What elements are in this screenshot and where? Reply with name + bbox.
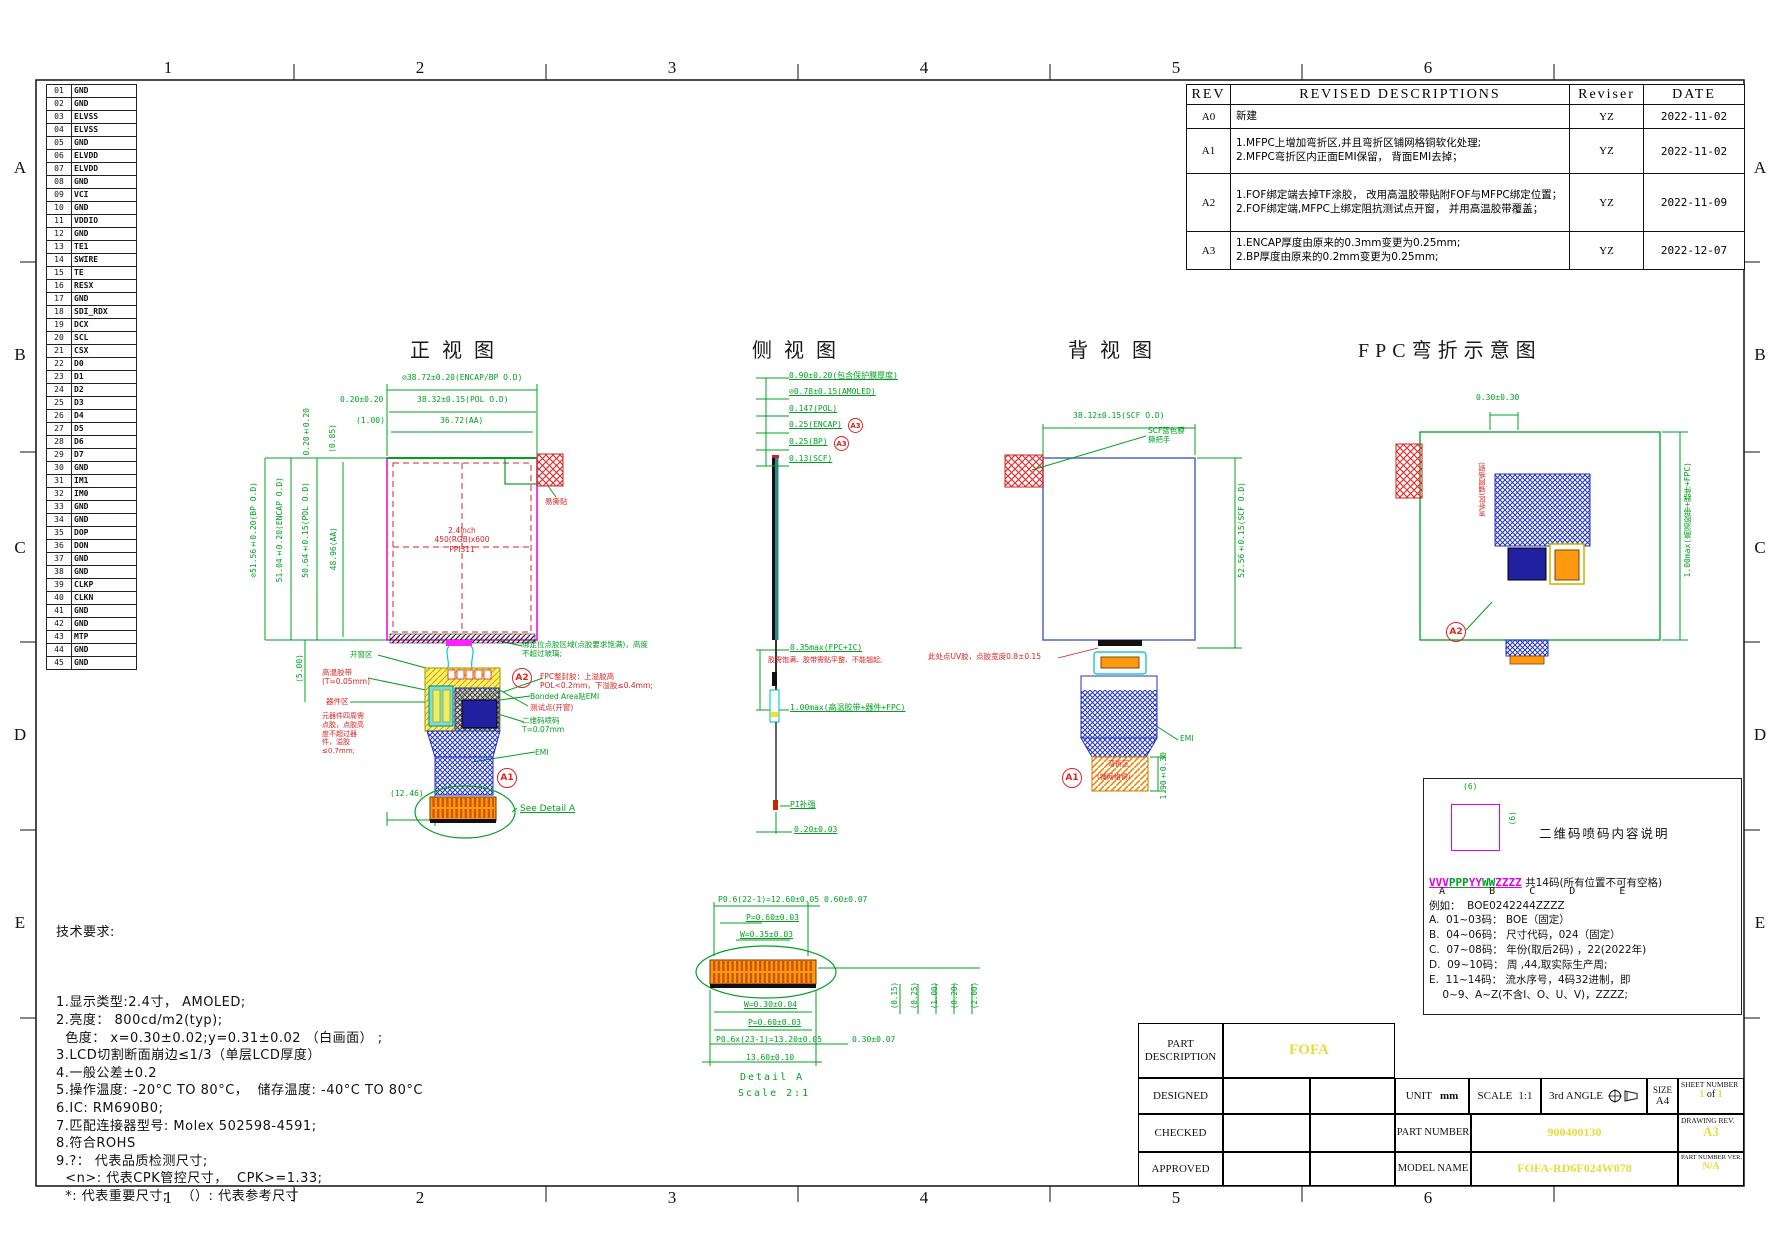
pin-row: 03 ELVSS — [47, 111, 137, 124]
dim-bp-height: ⊘51.56±0.20(BP O.D) — [250, 482, 259, 578]
pin-row: 14 SWIRE — [47, 254, 137, 267]
approved-date-cell — [1310, 1152, 1395, 1186]
qr-code-square — [1451, 804, 1500, 851]
pin-name: SDI_RDX — [72, 306, 137, 319]
revision-description: 新建 — [1231, 105, 1570, 129]
part-description-value: FOFA — [1223, 1023, 1395, 1078]
dim-pol-offset: 0.20±0.20 — [340, 396, 383, 405]
pin-number: 10 — [47, 202, 72, 215]
zone-number: 3 — [652, 58, 692, 78]
dim-scf-height: 52.56±0.15(SCF O.D) — [1238, 482, 1247, 578]
pin-number: 14 — [47, 254, 72, 267]
tech-line: 5.操作温度: -20°C TO 80°C， 储存温度: -40°C TO 80… — [56, 1082, 423, 1100]
tech-line: 2.亮度： 800cd/m2(typ); — [56, 1012, 423, 1030]
detail-a-scale: Scale 2:1 — [738, 1088, 810, 1099]
revision-id: A0 — [1187, 105, 1231, 129]
pin-row: 06 ELVDD — [47, 150, 137, 163]
ref-dim: (0.25) — [910, 982, 919, 1009]
zone-letter: B — [1748, 345, 1772, 365]
pin-row: 29 D7 — [47, 449, 137, 462]
pin-number: 20 — [47, 332, 72, 345]
pin-row: 11 VDDIO — [47, 215, 137, 228]
revision-id: A1 — [1187, 129, 1231, 174]
pin-row: 17 GND — [47, 293, 137, 306]
side-dim: 0.147(POL) — [789, 404, 898, 421]
checked-name-cell — [1223, 1114, 1310, 1152]
revision-date: 2022-11-09 — [1644, 174, 1745, 232]
detail-a-ref-dims: (0.15)(0.25)(1.00)(0.20)(2.00) — [890, 982, 979, 1009]
pin-row: 12 GND — [47, 228, 137, 241]
pin-name: D6 — [72, 436, 137, 449]
pin-number: 37 — [47, 553, 72, 566]
panel-ppi: PPI311 — [420, 545, 504, 554]
size-value: A4 — [1656, 1095, 1669, 1108]
qr-item: A. 01~03码： BOE（固定） — [1429, 913, 1646, 928]
pin-name: VCI — [72, 189, 137, 202]
pin-name: ELVSS — [72, 124, 137, 137]
pin-number: 36 — [47, 540, 72, 553]
pin-name: DCX — [72, 319, 137, 332]
pin-row: 43 MTP — [47, 631, 137, 644]
pin-name: D3 — [72, 397, 137, 410]
revision-reviser: YZ — [1570, 105, 1644, 129]
pin-number: 07 — [47, 163, 72, 176]
designed-date-cell — [1310, 1078, 1395, 1114]
pin-name: GND — [72, 566, 137, 579]
designed-name-cell — [1223, 1078, 1310, 1114]
scale-label: SCALE — [1478, 1090, 1513, 1103]
revision-reviser: YZ — [1570, 232, 1644, 270]
dim-aa-width: 36.72(AA) — [440, 417, 483, 426]
qr-item: E. 11~14码： 流水序号，4码32进制，即 — [1429, 973, 1646, 988]
dim-pol-height: 50.64±0.15(POL O.D) — [302, 482, 311, 578]
tech-line: 8.符合ROHS — [56, 1135, 423, 1153]
revision-row: A1 1.MFPC上增加弯折区,并且弯折区铺网格铜软化处理; 2.MFPC弯折区… — [1187, 129, 1745, 174]
front-view-title: 正视图 — [410, 334, 506, 363]
tech-lines: 1.显示类型:2.4寸， AMOLED;2.亮度： 800cd/m2(typ);… — [56, 942, 423, 1206]
qr-items: A. 01~03码： BOE（固定）B. 04~06码： 尺寸代码，024（固定… — [1429, 913, 1646, 1003]
zone-letter: D — [8, 725, 32, 745]
date-header: DATE — [1644, 85, 1745, 105]
revision-header-row: REV REVISED DESCRIPTIONS Reviser DATE — [1187, 85, 1745, 105]
pin-name: GND — [72, 228, 137, 241]
fpc-seal-note: FPC整封胶：上溢胶高POL<0.2mm，下溢胶≤0.4mm; — [540, 672, 660, 691]
zone-number: 1 — [148, 58, 188, 78]
pin-row: 25 D3 — [47, 397, 137, 410]
pin-number: 35 — [47, 527, 72, 540]
qr-item: D. 09~10码： 周 ,44,取实际生产周; — [1429, 958, 1646, 973]
qr-item: 0~9、A~Z(不含I、O、U、V)，ZZZZ; — [1429, 988, 1646, 1003]
pin-name: MTP — [72, 631, 137, 644]
revision-date: 2022-12-07 — [1644, 232, 1745, 270]
pin-row: 37 GND — [47, 553, 137, 566]
bend-area-label: 弯折区(铺网格铜) — [1478, 462, 1487, 516]
rev-a1-marker-front: A1 — [497, 768, 517, 788]
pin-row: 15 TE — [47, 267, 137, 280]
pin-row: 28 D6 — [47, 436, 137, 449]
technical-requirements: 技术要求: 1.显示类型:2.4寸， AMOLED;2.亮度： 800cd/m2… — [56, 924, 423, 1206]
bend-zone-label: 弯折区 — [1108, 760, 1129, 769]
qr-letters: A B C D E — [1429, 886, 1629, 897]
pin-name: GND — [72, 462, 137, 475]
scf-film-line1: SCF蓝色膜 — [1148, 426, 1185, 435]
dim-stack-height: 1.00max(高温胶带+器件+FPC) — [790, 704, 905, 713]
pin-name: CLKN — [72, 592, 137, 605]
dim-bend-stack: 1.00max(高温胶带+器件+FPC) — [1684, 462, 1693, 577]
pin-name: TE1 — [72, 241, 137, 254]
pin-number: 29 — [47, 449, 72, 462]
pin-row: 18 SDI_RDX — [47, 306, 137, 319]
window-area-label: 开窗区 — [350, 650, 373, 659]
pin-number: 40 — [47, 592, 72, 605]
pin-number: 02 — [47, 98, 72, 111]
uv-glue-note: 此处点UV胶，点胶宽度0.8±0.15 — [928, 652, 1041, 661]
tech-line: 9.?： 代表品质检测尺寸; — [56, 1153, 423, 1171]
sheet-number-value: 1 of 1 — [1699, 1089, 1722, 1101]
revision-description: 1.FOF绑定端去掉TF涂胶， 改用高温胶带贴附FOF与MFPC绑定位置； 2.… — [1231, 174, 1570, 232]
pin-row: 02 GND — [47, 98, 137, 111]
pin-number: 32 — [47, 488, 72, 501]
pin-row: 30 GND — [47, 462, 137, 475]
pin-number: 19 — [47, 319, 72, 332]
pin-name: DOP — [72, 527, 137, 540]
revision-row: A2 1.FOF绑定端去掉TF涂胶， 改用高温胶带贴附FOF与MFPC绑定位置；… — [1187, 174, 1745, 232]
dim-030: 0.30±0.07 — [852, 1036, 895, 1045]
pin-row: 20 SCL — [47, 332, 137, 345]
zone-letter: C — [1748, 538, 1772, 558]
rev-a3-marker-bp: A3 — [834, 436, 849, 451]
pin-row: 19 DCX — [47, 319, 137, 332]
pin-number: 17 — [47, 293, 72, 306]
pin-name: IM1 — [72, 475, 137, 488]
qr-print-label: 二维码喷码 T=0.07mm — [522, 716, 582, 735]
pin-number: 18 — [47, 306, 72, 319]
dim-width-top: W=0.35±0.03 — [740, 931, 793, 940]
zone-number: 2 — [400, 58, 440, 78]
pin-number: 42 — [47, 618, 72, 631]
pin-row: 41 GND — [47, 605, 137, 618]
zone-number: 5 — [1156, 58, 1196, 78]
approved-name-cell — [1223, 1152, 1310, 1186]
zone-number: 6 — [1408, 1188, 1448, 1208]
pin-number: 11 — [47, 215, 72, 228]
pin-row: 45 GND — [47, 657, 137, 670]
dim-scf-width: 38.12±0.15(SCF O.D) — [1073, 412, 1165, 421]
part-number-label: PART NUMBER — [1395, 1114, 1471, 1152]
pin-name: ELVDD — [72, 150, 137, 163]
pin-number: 21 — [47, 345, 72, 358]
dim-encap-bp-od: ⊘38.72±0.20(ENCAP/BP O.D) — [402, 374, 522, 383]
dim-085: (0.85) — [329, 424, 338, 453]
pin-row: 32 IM0 — [47, 488, 137, 501]
detail-a-caption: Detail A — [740, 1072, 804, 1083]
zone-number: 4 — [904, 58, 944, 78]
zone-number: 4 — [904, 1188, 944, 1208]
pin-number: 30 — [47, 462, 72, 475]
bonded-area-emi-label: Bonded Area贴EMI — [530, 692, 599, 701]
pin-row: 38 GND — [47, 566, 137, 579]
tech-line: 4.一般公差±0.2 — [56, 1065, 423, 1083]
pin-name: D5 — [72, 423, 137, 436]
tech-line: <n>: 代表CPK管控尺寸， CPK>=1.33; — [56, 1170, 423, 1188]
pin-name: GND — [72, 514, 137, 527]
pin-name: D4 — [72, 410, 137, 423]
pin-name: ELVDD — [72, 163, 137, 176]
unit-cell: UNIT mm — [1395, 1078, 1469, 1114]
scale-cell: SCALE 1:1 — [1469, 1078, 1541, 1114]
pin-number: 33 — [47, 501, 72, 514]
rev-a2-marker-front: A2 — [512, 668, 532, 688]
drawing-rev-value: A3 — [1703, 1125, 1719, 1140]
dim-aa-offset: (1.00) — [356, 417, 385, 426]
desc-header: REVISED DESCRIPTIONS — [1231, 85, 1570, 105]
pin-name: GND — [72, 176, 137, 189]
revision-row: A0 新建 YZ 2022-11-02 — [1187, 105, 1745, 129]
zone-letter: B — [8, 345, 32, 365]
pin-number: 08 — [47, 176, 72, 189]
pin-number: 27 — [47, 423, 72, 436]
pin-number: 23 — [47, 371, 72, 384]
model-name-value: FOFA-RD6F024W078 — [1471, 1152, 1678, 1186]
pin-row: 22 D0 — [47, 358, 137, 371]
dim-width-bottom: W=0.30±0.04 — [744, 1001, 797, 1010]
bonding-glue-note: 绑定位点胶区域(点胶要求饱满)，高度不超过玻璃; — [522, 640, 650, 659]
pin-name: DON — [72, 540, 137, 553]
pin-row: 44 GND — [47, 644, 137, 657]
pin-name: VDDIO — [72, 215, 137, 228]
pin-name: GND — [72, 137, 137, 150]
zone-letter: C — [8, 538, 32, 558]
pin-name: GND — [72, 553, 137, 566]
emi-label-back: EMI — [1180, 734, 1193, 743]
pin-name: SWIRE — [72, 254, 137, 267]
side-dim: 0.25(ENCAP) — [789, 420, 898, 437]
size-cell: SIZE A4 — [1647, 1078, 1678, 1114]
projection-cell: 3rd ANGLE — [1541, 1078, 1647, 1114]
side-dim: ⊘0.78±0.15(AMOLED) — [789, 387, 898, 404]
panel-spec-label: 2.4inch 450(RGB)x600 PPI311 — [420, 526, 504, 554]
pin-row: 10 GND — [47, 202, 137, 215]
scf-film-line2: 撕把手 — [1148, 435, 1185, 444]
zone-letter: E — [1748, 913, 1772, 933]
pin-table: 01 GND 02 GND 03 ELVSS 04 ELVSS — [46, 84, 137, 670]
pin-name: SCL — [72, 332, 137, 345]
pin-name: GND — [72, 202, 137, 215]
pin-name: D2 — [72, 384, 137, 397]
pin-number: 38 — [47, 566, 72, 579]
tape-label: 高温胶带 (T≈0.05mm) — [322, 668, 374, 687]
pin-row: 26 D4 — [47, 410, 137, 423]
ref-dim: (0.20) — [950, 982, 959, 1009]
pin-number: 15 — [47, 267, 72, 280]
pin-row: 07 ELVDD — [47, 163, 137, 176]
side-dim: 0.13(SCF) — [789, 454, 898, 471]
dim-1246: (12.46) — [390, 790, 424, 799]
pin-number: 28 — [47, 436, 72, 449]
ref-dim: (2.00) — [970, 982, 979, 1009]
rev-a1-marker-back: A1 — [1062, 768, 1082, 788]
zone-number: 5 — [1156, 1188, 1196, 1208]
sheet-of: of — [1707, 1089, 1715, 1100]
pin-row: 40 CLKN — [47, 592, 137, 605]
pin-name: GND — [72, 85, 137, 98]
pin-number: 43 — [47, 631, 72, 644]
tech-line: 3.LCD切割断面崩边≤1/3（单层LCD厚度） — [56, 1047, 423, 1065]
pin-number: 22 — [47, 358, 72, 371]
pin-row: 39 CLKP — [47, 579, 137, 592]
pin-number: 16 — [47, 280, 72, 293]
pin-number: 34 — [47, 514, 72, 527]
size-label: SIZE — [1653, 1085, 1672, 1095]
ref-dim: (1.00) — [930, 982, 939, 1009]
pin-number: 03 — [47, 111, 72, 124]
revision-reviser: YZ — [1570, 174, 1644, 232]
bend-zone-sublabel: (铺网格铜) — [1097, 773, 1130, 782]
qr-dim-width: (6) — [1463, 783, 1477, 792]
part-description-label: PART DESCRIPTION — [1138, 1023, 1223, 1078]
scf-film-label: SCF蓝色膜 撕把手 — [1148, 426, 1185, 445]
dim-bend-offset: 0.30±0.30 — [1476, 394, 1519, 403]
side-view-dim-stack: 0.90±0.20(包含保护膜厚度)⊘0.78±0.15(AMOLED)0.14… — [789, 370, 898, 471]
engineering-drawing-page: 123456 123456 ABCDE ABCDE 01 GND 02 GND — [0, 0, 1778, 1244]
scale-value: 1:1 — [1518, 1090, 1532, 1103]
revision-reviser: YZ — [1570, 129, 1644, 174]
pin-name: D7 — [72, 449, 137, 462]
zone-letter: E — [8, 913, 32, 933]
pin-row: 13 TE1 — [47, 241, 137, 254]
back-view-title: 背视图 — [1068, 334, 1164, 363]
pin-name: GND — [72, 644, 137, 657]
qr-item: B. 04~06码： 尺寸代码，024（固定） — [1429, 928, 1646, 943]
pin-number: 01 — [47, 85, 72, 98]
pin-name: CLKP — [72, 579, 137, 592]
projection-label: 3rd ANGLE — [1549, 1090, 1603, 1103]
side-dim: 0.90±0.20(包含保护膜厚度) — [789, 370, 898, 387]
pin-name: D1 — [72, 371, 137, 384]
sheet-current: 1 — [1699, 1089, 1704, 1100]
tech-line: 7.匹配连接器型号: Molex 502598-4591; — [56, 1118, 423, 1136]
sheet-number-label: SHEET NUMBER — [1681, 1080, 1738, 1089]
pin-number: 05 — [47, 137, 72, 150]
pin-name: IM0 — [72, 488, 137, 501]
zone-letter: D — [1748, 725, 1772, 745]
revision-id: A2 — [1187, 174, 1231, 232]
tear-sticker-label: 易撕贴 — [545, 497, 568, 506]
dim-fpc-ic: 0.35max(FPC+IC) — [790, 644, 862, 653]
pin-name: GND — [72, 605, 137, 618]
pi-stiffener-label: PI补强 — [790, 801, 816, 810]
dim-060: 0.60±0.07 — [824, 896, 867, 905]
dim-500: (5.00) — [296, 654, 305, 683]
drawing-rev-cell: DRAWING REV. A3 — [1678, 1114, 1744, 1152]
sheet-total: 1 — [1718, 1089, 1723, 1100]
pin-number: 45 — [47, 657, 72, 670]
pin-number: 31 — [47, 475, 72, 488]
pin-number: 04 — [47, 124, 72, 137]
checked-date-cell — [1310, 1114, 1395, 1152]
tech-line: 色度： x=0.30±0.02;y=0.31±0.02 （白画面） ; — [56, 1030, 423, 1048]
fpc-bend-view-title: FPC弯折示意图 — [1358, 334, 1542, 363]
component-glue-note: 元器件四周需点胶，点胶高度不超过器件，溢胶≤0.7mm; — [322, 712, 366, 756]
zone-letter: A — [1748, 158, 1772, 178]
dim-bend-height: 1.90±0.30 — [1160, 752, 1169, 800]
pin-name: GND — [72, 98, 137, 111]
revision-table: REV REVISED DESCRIPTIONS Reviser DATE A0… — [1186, 84, 1745, 270]
pin-row: 27 D5 — [47, 423, 137, 436]
pin-row: 31 IM1 — [47, 475, 137, 488]
pin-row: 34 GND — [47, 514, 137, 527]
third-angle-icon — [1607, 1087, 1639, 1105]
dim-encap-height: 51.04±0.20(ENCAP O.D) — [276, 477, 285, 582]
pn-version-cell: PART NUMBER VER. N/A — [1678, 1152, 1744, 1186]
pin-number: 25 — [47, 397, 72, 410]
see-detail-a-label: See Detail A — [520, 804, 575, 815]
part-number-value: 900400130 — [1471, 1114, 1678, 1152]
revision-date: 2022-11-02 — [1644, 129, 1745, 174]
revision-date: 2022-11-02 — [1644, 105, 1745, 129]
pin-name: GND — [72, 501, 137, 514]
pin-name: TE — [72, 267, 137, 280]
revision-row: A3 1.ENCAP厚度由原来的0.3mm变更为0.25mm; 2.BP厚度由原… — [1187, 232, 1745, 270]
pin-name: RESX — [72, 280, 137, 293]
approved-label: APPROVED — [1138, 1152, 1223, 1186]
checked-label: CHECKED — [1138, 1114, 1223, 1152]
pin-name: GND — [72, 618, 137, 631]
pin-name: GND — [72, 657, 137, 670]
pn-version-value: N/A — [1702, 1161, 1719, 1173]
pin-row: 09 VCI — [47, 189, 137, 202]
qr-item: C. 07~08码： 年份(取后2码) ，22(2022年) — [1429, 943, 1646, 958]
tech-line: 1.显示类型:2.4寸， AMOLED; — [56, 994, 423, 1012]
unit-label: UNIT — [1406, 1090, 1432, 1103]
component-area-label: 器件区 — [326, 697, 349, 706]
dim-pol-od: 38.32±0.15(POL O.D) — [417, 396, 509, 405]
reviser-header: Reviser — [1570, 85, 1644, 105]
tech-line: 6.IC: RM690B0; — [56, 1100, 423, 1118]
dim-pi-thickness: 0.20±0.03 — [794, 826, 837, 835]
pin-row: 16 RESX — [47, 280, 137, 293]
dim-pitch-23: P0.6x(23-1)=13.20±0.05 — [716, 1036, 822, 1045]
pin-number: 39 — [47, 579, 72, 592]
rev-a3-marker-encap: A3 — [848, 418, 863, 433]
panel-size: 2.4inch — [420, 526, 504, 535]
pin-row: 42 GND — [47, 618, 137, 631]
pin-row: 33 GND — [47, 501, 137, 514]
pin-name: CSX — [72, 345, 137, 358]
pin-number: 26 — [47, 410, 72, 423]
tech-line: *: 代表重要尺寸; （）: 代表参考尺寸 — [56, 1188, 423, 1206]
zone-letter: A — [8, 158, 32, 178]
qr-code-note-box: (6) (6) 二维码喷码内容说明 VVVPPPYYWWZZZZ 共14码(所有… — [1423, 778, 1742, 1015]
dim-top-offset: 0.20±0.20 — [303, 408, 312, 456]
pin-row: 08 GND — [47, 176, 137, 189]
pin-number: 06 — [47, 150, 72, 163]
pin-number: 12 — [47, 228, 72, 241]
rev-a2-marker-fpc: A2 — [1446, 622, 1466, 642]
pin-number: 13 — [47, 241, 72, 254]
tech-title: 技术要求: — [56, 924, 423, 942]
revision-id: A3 — [1187, 232, 1231, 270]
pin-name: GND — [72, 293, 137, 306]
zone-number: 3 — [652, 1188, 692, 1208]
sheet-number-cell: SHEET NUMBER 1 of 1 — [1678, 1078, 1744, 1114]
dim-pitch-22: P0.6(22-1)=12.60±0.05 — [718, 896, 819, 905]
zone-number: 6 — [1408, 58, 1448, 78]
pin-number: 44 — [47, 644, 72, 657]
pin-row: 04 ELVSS — [47, 124, 137, 137]
side-glue-note: 胶需饱满、胶带需贴平整、不能翘起; — [768, 656, 882, 665]
model-name-label: MODEL NAME — [1395, 1152, 1471, 1186]
